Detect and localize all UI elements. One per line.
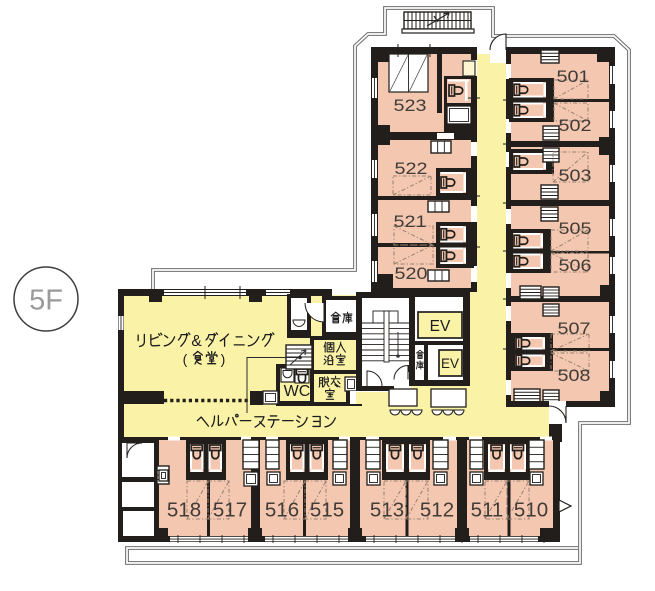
svg-text:503: 503	[559, 166, 592, 185]
svg-text:520: 520	[395, 264, 428, 283]
svg-text:511: 511	[471, 499, 504, 522]
svg-text:505: 505	[559, 219, 592, 238]
svg-text:518: 518	[167, 499, 201, 522]
svg-text:): )	[221, 351, 226, 367]
svg-text:523: 523	[394, 96, 427, 115]
svg-text:515: 515	[310, 499, 344, 522]
svg-text:510: 510	[514, 499, 548, 522]
svg-text:(: (	[183, 351, 188, 367]
svg-text:516: 516	[265, 499, 299, 522]
svg-text:WC: WC	[284, 383, 311, 400]
svg-text:EV: EV	[441, 356, 459, 371]
svg-text:517: 517	[213, 499, 247, 522]
svg-text:506: 506	[559, 256, 592, 275]
svg-text:5F: 5F	[29, 285, 63, 317]
svg-text:501: 501	[557, 67, 590, 86]
svg-text:&: &	[191, 333, 202, 350]
svg-text:521: 521	[394, 212, 427, 231]
svg-text:502: 502	[559, 116, 592, 135]
svg-text:EV: EV	[430, 318, 451, 335]
svg-text:508: 508	[558, 366, 591, 385]
svg-text:512: 512	[420, 499, 454, 522]
svg-text:513: 513	[370, 499, 404, 522]
svg-text:507: 507	[558, 319, 591, 338]
svg-text:522: 522	[395, 159, 428, 178]
